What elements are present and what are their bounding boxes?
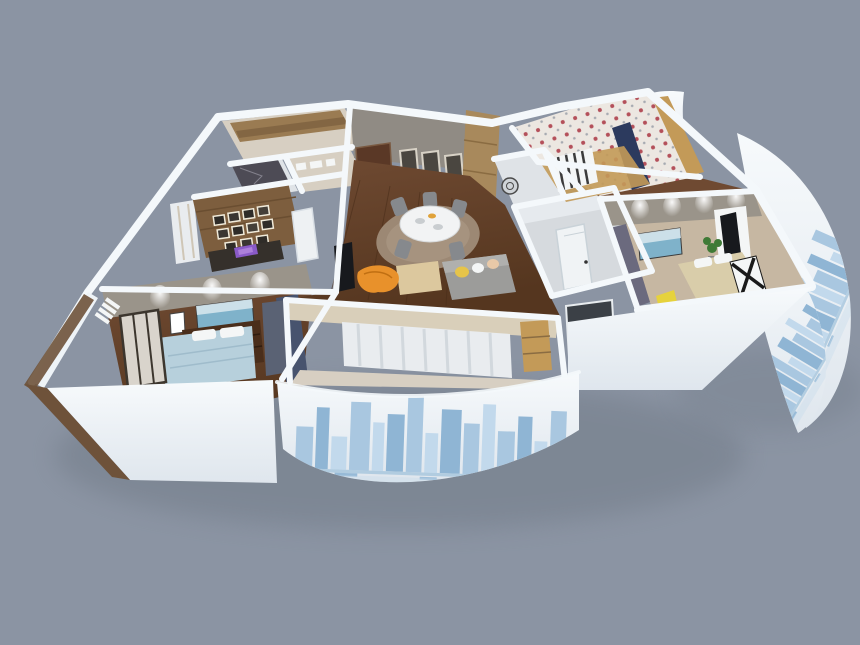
orange-blanket [357,265,399,292]
render-canvas [0,0,860,645]
apartment-3d-render [0,0,860,645]
bathroom-door-handle [584,260,588,264]
sofa [442,254,516,300]
table-fruit [428,214,436,219]
wardrobe [120,310,166,388]
sofa-pillow-yellow [455,267,469,278]
balcony-cabinet [520,320,552,372]
ottoman [396,261,442,295]
dining-table [400,206,460,242]
sofa-pillow-white [472,263,484,273]
wall-medallion [502,178,518,194]
sofa-pillow-peach [487,259,499,269]
